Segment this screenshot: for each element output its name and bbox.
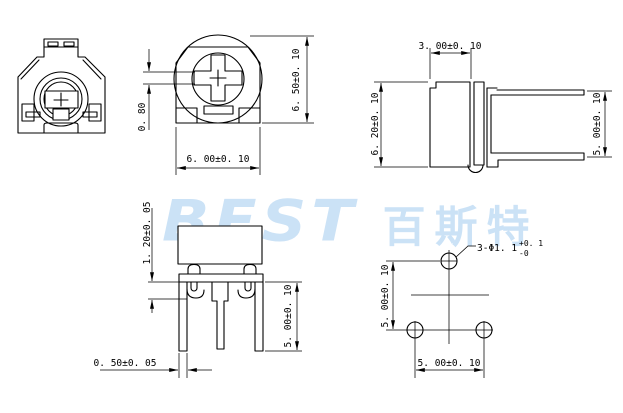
- view-front: [174, 35, 262, 123]
- dim-slot-width: 0. 80: [137, 102, 148, 131]
- dim-side-height: 6. 20±0. 10: [370, 92, 381, 155]
- dim-hole-spacing-vertical: 5. 00±0. 10: [380, 264, 391, 327]
- dim-front-height: 6. 50±0. 10: [291, 48, 302, 111]
- hole-callout-tolerance-plus: +0. 1: [519, 239, 543, 248]
- hole-callout: 3-Φ1. 1: [477, 243, 517, 254]
- dim-leg-length: 5. 00±0. 10: [283, 284, 294, 347]
- engineering-drawing: BEST 百斯特: [0, 0, 623, 413]
- dim-front-width: 6. 00±0. 10: [187, 154, 250, 165]
- hole-callout-tolerance-minus: -0: [519, 249, 529, 258]
- view-front-pins: [178, 226, 263, 351]
- view-side-dimension-lines: [374, 48, 612, 167]
- dim-hole-spacing-horizontal: 5. 00±0. 10: [418, 358, 481, 369]
- drawing-canvas: 0. 80 6. 50±0. 10 6. 00±0. 10 3. 00±0. 1…: [0, 0, 623, 413]
- dim-side-depth: 3. 00±0. 10: [419, 41, 482, 52]
- dim-standoff-height: 1. 20±0. 05: [142, 202, 153, 265]
- dim-side-pin-spacing: 5. 00±0. 10: [592, 92, 603, 155]
- view-side: [430, 82, 584, 173]
- view-top: [18, 39, 105, 133]
- dim-leg-width: 0. 50±0. 05: [94, 358, 157, 369]
